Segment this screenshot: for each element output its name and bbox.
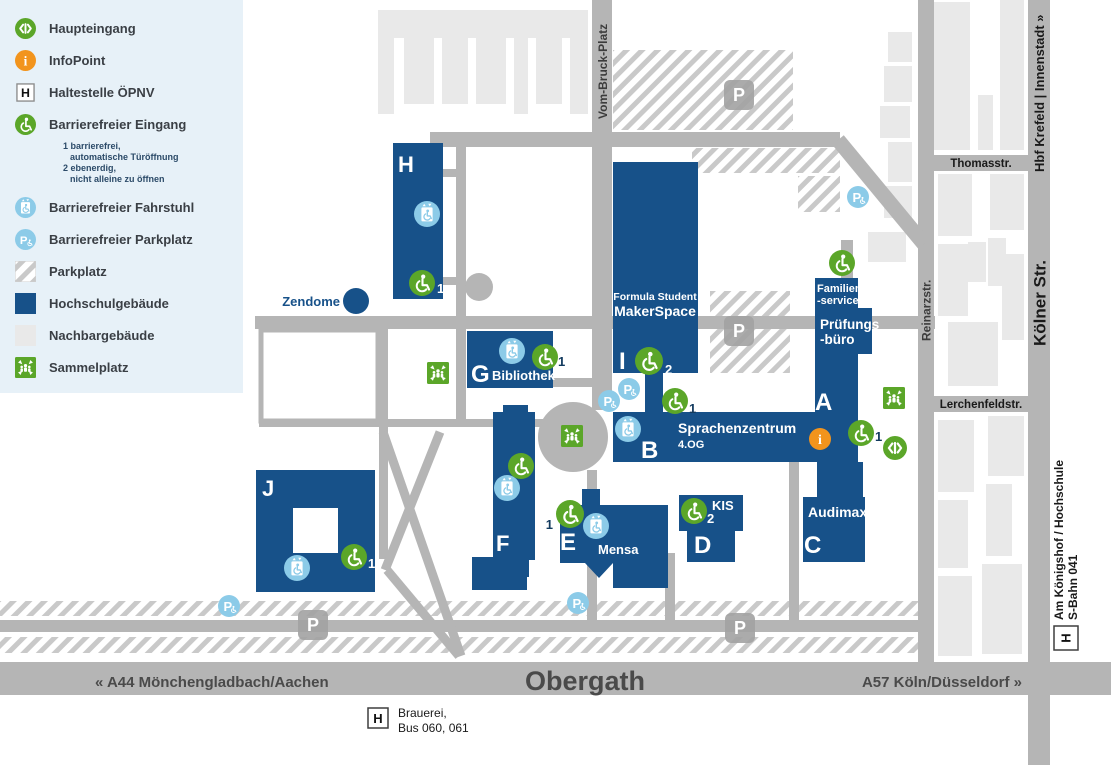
wheelchair-icon: [14, 113, 36, 135]
formula-student-label: Formula Student: [613, 291, 697, 303]
elevator-icon: [583, 513, 609, 539]
street-a44: « A44 Mönchengladbach/Aachen: [95, 674, 329, 691]
parking-icon: P: [724, 316, 754, 346]
legend-label: Hochschulgebäude: [49, 296, 169, 311]
bus-stop-icon: H: [14, 81, 36, 103]
infopoint-icon: i: [14, 49, 36, 71]
svg-text:P: P: [224, 599, 233, 614]
bus-stop-brauerei: H: [368, 708, 388, 728]
entrance-note-line: 1 barrierefrei,: [63, 141, 243, 152]
entrance-note-line: automatische Türöffnung: [63, 152, 243, 163]
street-koenigshof: Am Königshof / Hochschule: [1052, 460, 1066, 620]
legend-label: InfoPoint: [49, 53, 105, 68]
building-j-courtyard: [293, 508, 338, 553]
building-i-label: I: [619, 348, 626, 375]
badge-i: 2: [665, 362, 672, 377]
legend-item-fahrstuhl: Barrierefreier Fahrstuhl: [14, 197, 243, 219]
assembly-point-icon: [14, 357, 36, 379]
audimax-label: Audimax: [808, 504, 867, 520]
svg-text:P: P: [624, 382, 633, 397]
wheelchair-icon: [848, 420, 874, 446]
accessible-parking-icon: P: [618, 378, 640, 400]
street-sbahn: S-Bahn 041: [1066, 554, 1080, 620]
legend-item-hochschulgebaeude: Hochschulgebäude: [14, 293, 243, 315]
street-koelner-str: Kölner Str.: [1031, 260, 1050, 346]
street-lerchenfeldstr: Lerchenfeldstr.: [940, 399, 1022, 411]
legend-label: Haupteingang: [49, 21, 136, 36]
elevator-icon: [414, 201, 440, 227]
elevator-icon: [494, 475, 520, 501]
pruefungsbuero-label-1: Prüfungs: [820, 317, 879, 332]
badge-g: 1: [558, 354, 565, 369]
svg-text:H: H: [373, 711, 382, 726]
svg-text:i: i: [23, 53, 27, 68]
svg-text:H: H: [1059, 633, 1074, 642]
building-e-notch: [582, 489, 600, 506]
svg-text:P: P: [573, 596, 582, 611]
wheelchair-icon: [532, 344, 558, 370]
entrance-note-line: nicht alleine zu öffnen: [63, 174, 243, 185]
university-building-swatch: [14, 293, 36, 315]
sprachenzentrum-label: Sprachenzentrum: [678, 420, 796, 436]
assembly-point-icon: [427, 362, 449, 384]
zendome-label: Zendome: [282, 294, 340, 309]
campus-map-page: P P P P P P P P P: [0, 0, 1111, 765]
entrance-note-line: 2 ebenerdig,: [63, 163, 243, 174]
building-c-label: C: [804, 532, 821, 559]
building-e-label: E: [560, 529, 576, 556]
legend-label: Barrierefreier Parkplatz: [49, 232, 193, 247]
legend-panel: Haupteingang i InfoPoint H Haltestelle Ö…: [0, 0, 243, 393]
familienservice-label-1: Familien: [817, 283, 862, 295]
wheelchair-icon: [409, 270, 435, 296]
familienservice-label-2: -service: [817, 295, 859, 307]
badge-i-lower: 1: [689, 401, 696, 416]
street-vom-bruck-platz: Vom-Bruck-Platz: [596, 24, 610, 119]
building-f-notch: [503, 405, 528, 413]
building-i-stub: [645, 373, 663, 413]
badge-h: 1: [437, 281, 444, 296]
svg-text:P: P: [604, 394, 613, 409]
elevator-icon: [284, 555, 310, 581]
svg-text:P: P: [733, 85, 745, 105]
legend-item-barrierefreier-parkplatz: P Barrierefreier Parkplatz: [14, 229, 243, 251]
wheelchair-icon: [556, 500, 584, 528]
svg-text:P: P: [307, 615, 319, 635]
entrance-notes: 1 barrierefrei, automatische Türöffnung …: [63, 141, 243, 185]
legend-item-haltestelle: H Haltestelle ÖPNV: [14, 81, 243, 103]
og-label: 4.OG: [678, 439, 704, 451]
kis-label: KIS: [712, 498, 734, 513]
street-reinarzstr: Reinarzstr.: [920, 280, 934, 341]
building-d-label: D: [694, 532, 711, 559]
main-entrance-icon: [14, 17, 36, 39]
legend-label: Haltestelle ÖPNV: [49, 85, 155, 100]
building-c-link: [817, 462, 863, 498]
accessible-parking-icon: P: [847, 186, 869, 208]
bibliothek-label: Bibliothek: [492, 368, 556, 383]
parking-swatch: [14, 261, 36, 283]
pruefungsbuero-label-2: -büro: [820, 332, 855, 347]
accessible-parking-icon: P: [218, 595, 240, 617]
svg-text:P: P: [853, 190, 862, 205]
legend-label: Barrierefreier Fahrstuhl: [49, 200, 194, 215]
legend-item-haupteingang: Haupteingang: [14, 17, 243, 39]
legend-label: Barrierefreier Eingang: [49, 117, 186, 132]
stop-brauerei-line2: Bus 060, 061: [398, 721, 469, 735]
infopoint-icon: i: [809, 428, 831, 450]
svg-text:H: H: [21, 85, 30, 99]
wheelchair-icon: [829, 250, 855, 276]
legend-item-barrierefreier-eingang: Barrierefreier Eingang: [14, 113, 243, 135]
building-f-step: [515, 557, 529, 577]
badge-a: 1: [875, 429, 882, 444]
badge-d: 2: [707, 511, 714, 526]
building-h-label: H: [398, 152, 414, 177]
svg-text:P: P: [734, 618, 746, 638]
accessible-parking-icon: P: [567, 592, 589, 614]
stop-brauerei-line1: Brauerei,: [398, 706, 447, 720]
svg-text:P: P: [19, 235, 27, 247]
building-i: [613, 162, 698, 373]
svg-text:i: i: [818, 433, 822, 448]
badge-j: 1: [368, 556, 375, 571]
zendome-dome: [343, 288, 369, 314]
makerspace-label: MakerSpace: [614, 303, 696, 319]
legend-item-nachbargebaeude: Nachbargebäude: [14, 325, 243, 347]
legend-label: Sammelplatz: [49, 360, 128, 375]
legend-item-parkplatz: Parkplatz: [14, 261, 243, 283]
courtyard-block: [261, 330, 378, 421]
wheelchair-icon: [341, 544, 367, 570]
building-g-label: G: [471, 361, 490, 388]
neighbor-building-swatch: [14, 325, 36, 347]
building-b-label: B: [641, 437, 658, 464]
parking-icon: P: [725, 613, 755, 643]
legend-label: Parkplatz: [49, 264, 107, 279]
elevator-icon: [615, 416, 641, 442]
badge-e: 1: [546, 517, 553, 532]
legend-item-sammelplatz: Sammelplatz: [14, 357, 243, 379]
svg-text:P: P: [733, 321, 745, 341]
street-a57: A57 Köln/Düsseldorf »: [862, 674, 1022, 691]
main-entrance-icon: [883, 436, 907, 460]
building-j-label: J: [262, 476, 274, 501]
sbahn-stop-koenigshof: H: [1054, 626, 1078, 650]
parking-icon: P: [724, 80, 754, 110]
building-f-label: F: [496, 531, 509, 556]
elevator-icon: [499, 338, 525, 364]
accessible-parking-icon: P: [598, 390, 620, 412]
wheelchair-icon: [662, 388, 688, 414]
accessible-parking-icon: P: [14, 229, 36, 251]
wheelchair-icon: [508, 453, 534, 479]
legend-label: Nachbargebäude: [49, 328, 154, 343]
elevator-icon: [14, 197, 36, 219]
assembly-point-icon: [561, 425, 583, 447]
parking-icon: P: [298, 610, 328, 640]
assembly-point-icon: [883, 387, 905, 409]
building-a-label: A: [815, 389, 832, 416]
wheelchair-icon: [681, 498, 707, 524]
wheelchair-icon: [635, 347, 663, 375]
street-thomasstr: Thomasstr.: [950, 158, 1011, 170]
street-obergath: Obergath: [525, 666, 645, 696]
mensa-label: Mensa: [598, 542, 639, 557]
street-hbf-innenstadt: Hbf Krefeld | Innenstadt »: [1032, 15, 1047, 173]
legend-item-infopoint: i InfoPoint: [14, 49, 243, 71]
